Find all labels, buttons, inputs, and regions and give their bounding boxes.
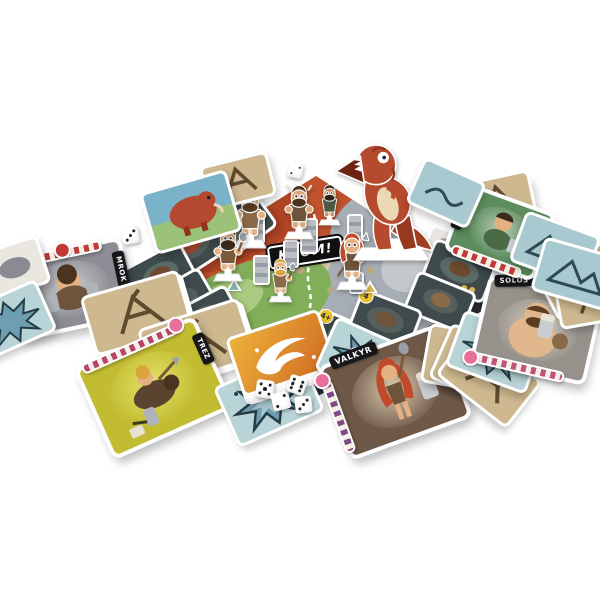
die (287, 162, 305, 180)
boardgame-photo: 4+ 4 KROM! (0, 0, 600, 600)
caveman-icon (266, 258, 295, 304)
die (294, 395, 313, 414)
die (121, 226, 141, 246)
caveman-standee (281, 184, 317, 242)
caveman-standee (266, 258, 295, 304)
caveman-icon (281, 184, 317, 242)
